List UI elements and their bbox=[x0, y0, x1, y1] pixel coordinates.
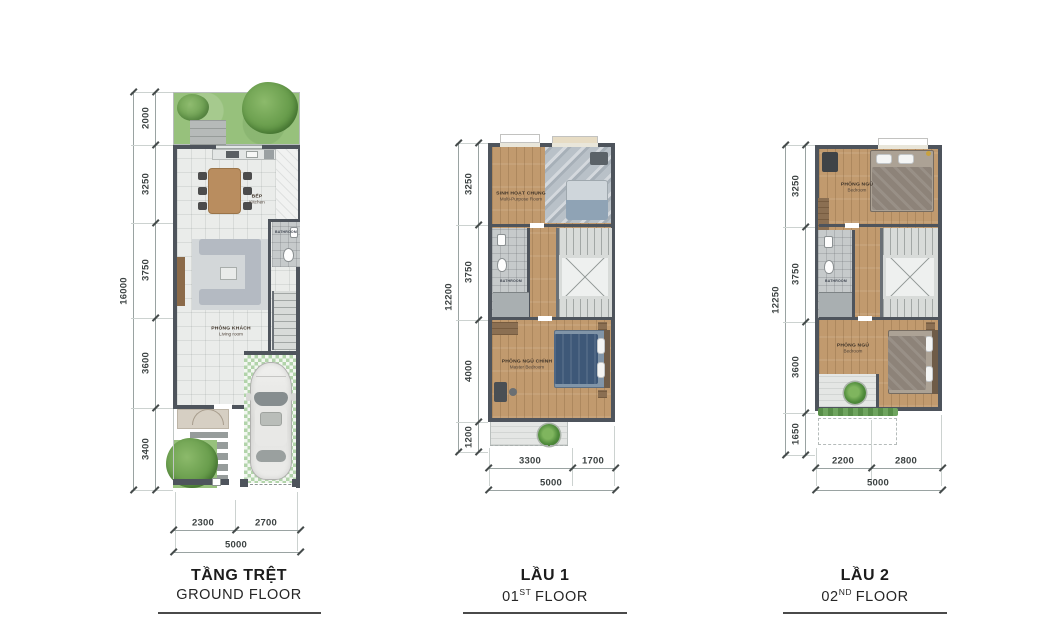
bed bbox=[888, 330, 938, 394]
wall-segment bbox=[819, 317, 939, 320]
bed bbox=[870, 150, 934, 212]
extension-line bbox=[783, 413, 815, 414]
extension-line bbox=[871, 420, 872, 486]
title-underline bbox=[783, 612, 947, 614]
dimension-line bbox=[785, 145, 786, 455]
pillow bbox=[925, 336, 933, 352]
dim-label: 2800 bbox=[895, 456, 917, 467]
dim-label: 3750 bbox=[791, 263, 802, 285]
extension-line bbox=[783, 322, 815, 323]
nightstand bbox=[926, 322, 935, 330]
dim-label: 2200 bbox=[832, 456, 854, 467]
floorplan-sheet: BẾP Kitchen BATHROOM PHÒNG KHÁCH Living … bbox=[0, 0, 1050, 640]
bed-blanket bbox=[888, 336, 926, 390]
toilet bbox=[824, 260, 834, 274]
planter-hedge bbox=[818, 408, 898, 416]
dimension-line bbox=[815, 468, 942, 469]
dimension-line bbox=[805, 145, 806, 455]
dimension-line bbox=[815, 490, 942, 491]
second-floor-plan-group: PHÒNG NGỦ Bedroom BATHROOM PHÒNG NGỦ Bed… bbox=[0, 0, 1050, 640]
desk bbox=[822, 152, 838, 172]
extension-line bbox=[783, 145, 815, 146]
shower bbox=[819, 292, 852, 317]
bedroom1-label: PHÒNG NGỦ Bedroom bbox=[841, 181, 873, 193]
extension-line bbox=[941, 415, 942, 486]
bedroom2-label: PHÒNG NGỦ Bedroom bbox=[837, 342, 869, 354]
sink bbox=[824, 236, 833, 248]
pillow bbox=[925, 366, 933, 382]
overall-height-label: 12250 bbox=[771, 286, 782, 313]
bed-blanket bbox=[872, 167, 932, 210]
extension-line bbox=[783, 227, 815, 228]
dim-tick bbox=[939, 464, 946, 471]
stair-landing bbox=[886, 258, 934, 296]
dim-tick bbox=[939, 486, 946, 493]
dim-label: 1650 bbox=[791, 423, 802, 445]
window bbox=[878, 145, 928, 149]
potted-plant bbox=[844, 382, 866, 404]
title-english: 02ND FLOOR bbox=[821, 587, 908, 605]
overall-width-label: 5000 bbox=[867, 478, 889, 489]
bedroom2-label-vi: PHÒNG NGỦ bbox=[837, 342, 869, 348]
wall-segment bbox=[819, 224, 939, 227]
lamp bbox=[926, 151, 931, 156]
second-floor-title: LẦU 2 02ND FLOOR bbox=[821, 567, 908, 605]
dim-label: 3600 bbox=[791, 356, 802, 378]
open-void bbox=[818, 418, 897, 445]
bedroom1-label-en: Bedroom bbox=[841, 187, 873, 193]
bedroom2-label-en: Bedroom bbox=[837, 348, 869, 354]
stair-treads bbox=[883, 228, 938, 255]
door-opening bbox=[845, 223, 859, 228]
bedroom1-label-vi: PHÒNG NGỦ bbox=[841, 181, 873, 187]
pillow bbox=[898, 154, 914, 164]
title-vietnamese: LẦU 2 bbox=[821, 567, 908, 585]
pillow bbox=[876, 154, 892, 164]
bathroom-label: BATHROOM bbox=[825, 279, 847, 283]
extension-line bbox=[783, 455, 815, 456]
door-opening bbox=[858, 316, 872, 321]
wall-segment bbox=[876, 374, 879, 407]
dim-label: 3250 bbox=[791, 175, 802, 197]
